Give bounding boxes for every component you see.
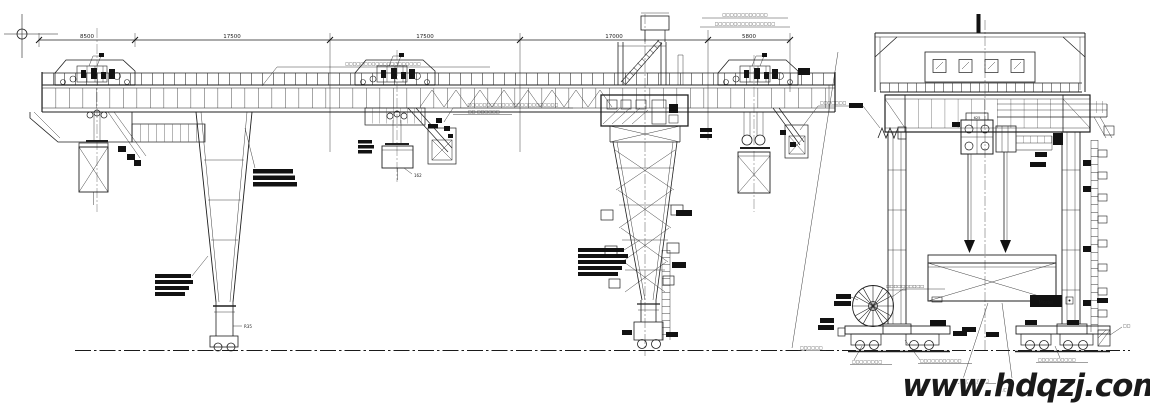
bogie-center-note: □□□□□□□□□□□: [920, 358, 962, 363]
crane-drawing-canvas: 8500 17500 17500 17000 5800 □□□□□□□□□□□□…: [0, 0, 1150, 403]
top-right-note: □□□□□□□□□□□□ □□□□□□□□□□□□□□□□: [700, 12, 790, 27]
middle-hook-load: 162: [358, 108, 425, 180]
right-walkway: [997, 104, 1114, 138]
top-frame: [875, 33, 1085, 92]
top-dimension-chain: 8500 17500 17500 17000 5800: [36, 30, 793, 152]
model-tag: Model: [1030, 295, 1073, 307]
mast: [977, 14, 981, 33]
middle-stairs: [408, 108, 456, 164]
bogie-left-note2: □□□□□□: [800, 345, 823, 350]
projection-line: [792, 52, 838, 348]
left-bogie: [838, 320, 999, 350]
girder-note-text: □□□□□□□□□□□□□□□□□□□□: [345, 61, 421, 66]
cable-reel: [818, 286, 894, 331]
datum-crosshair-icon: [4, 14, 58, 58]
hoist-block: 625: [952, 113, 1063, 167]
side-ladder: [1083, 140, 1107, 332]
end-view: 625: [798, 14, 1131, 392]
spreader-note: □□□□□□□□□□: [886, 284, 924, 289]
elevation-view: 8500 17500 17500 17000 5800 □□□□□□□□□□□□…: [4, 12, 852, 356]
leg-annotation-blocks: [155, 128, 297, 296]
mid-note-1: □□□□□□□□□□□□□□□□□□□□□□□□: [468, 102, 559, 107]
right-hook-load: [700, 112, 770, 193]
watermark-link[interactable]: www.hdqzj.com: [902, 368, 1150, 403]
dim-5800: 5800: [742, 34, 756, 40]
left-end-structure: [30, 112, 205, 166]
middle-tower: [578, 13, 692, 356]
dim-17500b: 17500: [416, 34, 434, 40]
left-trolley: [55, 28, 135, 212]
spreader-and-load: □□□□□□□□□□: [886, 152, 1056, 302]
bogie-right-note: □□□□□□□□□□: [1038, 357, 1076, 362]
buffer-spring: [849, 103, 906, 139]
mid-note-2: □□-□□□□□□: [468, 109, 500, 114]
hoist-block-mark: 625: [974, 116, 981, 120]
dim-17000: 17000: [605, 34, 623, 40]
left-hook-load: [79, 110, 108, 205]
dim-17500a: 17500: [223, 34, 241, 40]
right-stairs: □□□□□□□: [773, 100, 852, 158]
window-row: [933, 60, 1024, 73]
right-jack-mark: □□: [1123, 323, 1131, 328]
cross-girder: [885, 95, 1090, 132]
trolley-load-mark: 162: [414, 173, 422, 178]
model-tag-text: Model: [1038, 300, 1053, 306]
girder-notes: □□□□□□□□□□□□□□□□□□□□ □□□□□□□□□□□□□□□□□□□…: [262, 61, 573, 122]
leg-bottom-mark: R35: [244, 324, 252, 329]
dim-8500: 8500: [80, 34, 94, 40]
left-leg: R35: [196, 112, 252, 351]
main-girder: [42, 68, 835, 112]
bogie-left-note: □□□□□□□□: [852, 359, 882, 364]
cad-drawing: 8500 17500 17500 17000 5800 □□□□□□□□□□□□…: [0, 0, 1150, 403]
note-line1: □□□□□□□□□□□□: [722, 12, 768, 17]
right-trolley-note: □□□□□□□: [820, 100, 847, 105]
note-line2: □□□□□□□□□□□□□□□□: [715, 21, 776, 26]
